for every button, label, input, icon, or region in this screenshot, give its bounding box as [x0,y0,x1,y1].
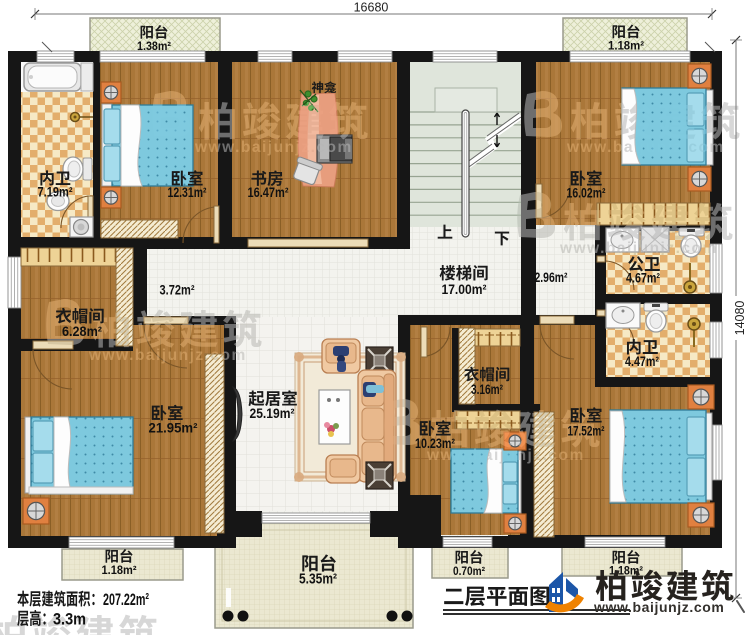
svg-text:21.95m²: 21.95m² [149,421,198,436]
svg-text:3.16m²: 3.16m² [471,382,503,397]
svg-text:7.19m²: 7.19m² [38,185,73,200]
svg-text:1.18m²: 1.18m² [608,39,644,53]
svg-text:3.72m²: 3.72m² [160,283,195,298]
svg-text:12.31m²: 12.31m² [168,185,207,200]
svg-text:17.52m²: 17.52m² [568,424,605,439]
svg-text:207.22m²: 207.22m² [103,591,149,609]
svg-text:1.18m²: 1.18m² [102,563,137,577]
svg-text:1.38m²: 1.38m² [137,39,171,53]
svg-text:16.47m²: 16.47m² [248,185,289,200]
svg-text:www.baijunjz.com: www.baijunjz.com [88,347,247,364]
svg-text:14080: 14080 [733,301,747,336]
svg-text:0.70m²: 0.70m² [453,564,485,578]
svg-text:5.35m²: 5.35m² [299,572,337,588]
svg-text:17.00m²: 17.00m² [442,282,487,297]
svg-text:4.47m²: 4.47m² [625,354,659,369]
svg-text:6.28m²: 6.28m² [62,324,102,339]
svg-text:www.baijunjz.com: www.baijunjz.com [194,139,353,156]
svg-text:25.19m²: 25.19m² [250,406,295,421]
svg-text:3.3m: 3.3m [53,611,86,629]
svg-text:www.baijunjz.com: www.baijunjz.com [559,240,718,257]
svg-text:16680: 16680 [354,1,389,15]
svg-text:10.23m²: 10.23m² [415,436,455,451]
svg-text:www.baijunjz.com: www.baijunjz.com [566,139,725,156]
svg-text:4.67m²: 4.67m² [626,271,660,286]
svg-text:16.02m²: 16.02m² [567,186,606,201]
svg-text:2.96m²: 2.96m² [535,270,568,285]
svg-text:www.baijunjz.com: www.baijunjz.com [593,599,724,615]
